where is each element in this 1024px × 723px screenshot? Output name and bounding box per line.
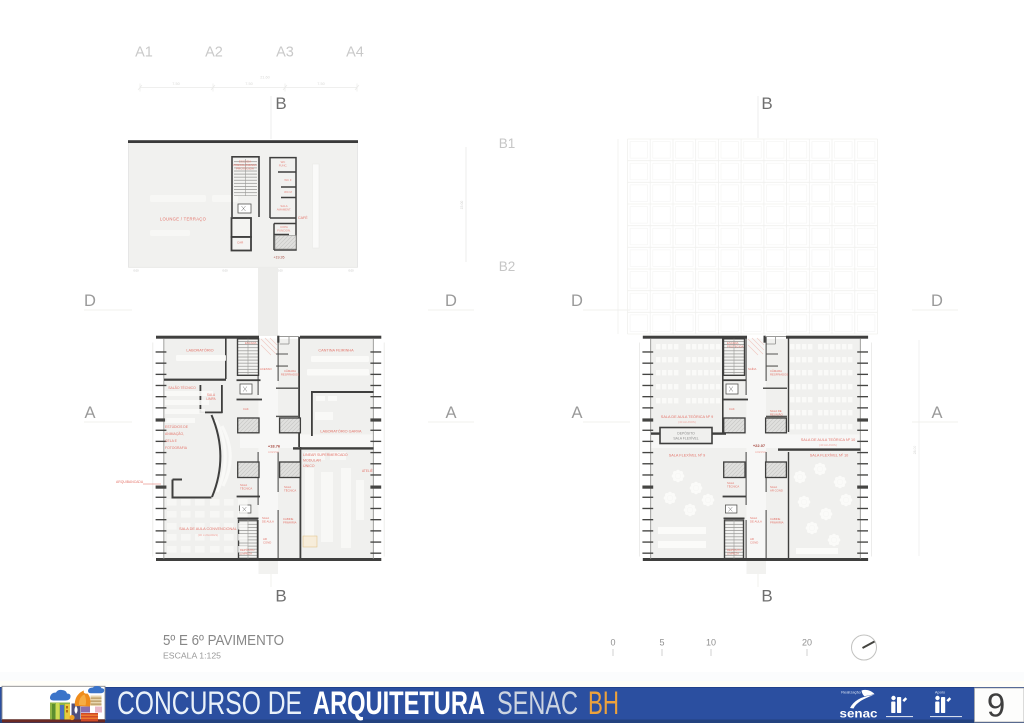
svg-text:D: D: [445, 292, 457, 310]
svg-text:7.50: 7.50: [317, 82, 324, 86]
svg-text:LABORATÓRIO GARVA: LABORATÓRIO GARVA: [320, 429, 362, 434]
svg-text:7.50: 7.50: [245, 82, 252, 86]
svg-text:Apoio: Apoio: [935, 690, 946, 695]
svg-text:0.00: 0.00: [133, 269, 139, 273]
svg-text:20: 20: [802, 638, 812, 648]
svg-text:LOUNGE / TERRAÇO: LOUNGE / TERRAÇO: [160, 217, 207, 222]
svg-text:0: 0: [610, 638, 615, 648]
svg-text:TÉCNICA: TÉCNICA: [727, 484, 739, 489]
svg-text:ACESSO: ACESSO: [268, 450, 279, 454]
svg-text:A3: A3: [276, 45, 294, 61]
svg-text:COND: COND: [750, 541, 758, 545]
svg-text:LIMPEZA: LIMPEZA: [727, 552, 739, 556]
svg-text:TÉCNICA: TÉCNICA: [284, 488, 296, 493]
svg-text:B: B: [275, 94, 286, 113]
svg-text:SALA DE AULA CONVENCIONAL: SALA DE AULA CONVENCIONAL: [179, 527, 237, 531]
svg-text:D: D: [931, 292, 943, 310]
svg-text:DE AULA: DE AULA: [262, 520, 274, 524]
svg-text:A: A: [571, 404, 582, 422]
svg-text:SALA FLEXÍVEL Nº 10: SALA FLEXÍVEL Nº 10: [810, 454, 849, 458]
svg-text:ESCALA 1:125: ESCALA 1:125: [163, 652, 222, 661]
svg-text:WC M: WC M: [284, 190, 292, 194]
svg-text:RESFRIADOS: RESFRIADOS: [281, 373, 299, 377]
svg-text:SENAC: SENAC: [497, 685, 578, 721]
svg-text:10: 10: [706, 638, 716, 648]
svg-text:28.00: 28.00: [913, 446, 917, 455]
svg-text:PRIMÁRIA: PRIMÁRIA: [770, 521, 784, 525]
svg-text:ANIMAÇÃO,: ANIMAÇÃO,: [165, 431, 184, 436]
svg-text:REUNIÃO: REUNIÃO: [770, 412, 784, 417]
svg-text:B1: B1: [499, 136, 516, 151]
svg-text:SALA FLEXÍVEL: SALA FLEXÍVEL: [673, 437, 698, 441]
svg-text:9: 9: [987, 687, 1005, 723]
svg-text:PRIMÁRIA: PRIMÁRIA: [283, 521, 297, 525]
svg-text:B: B: [761, 587, 772, 606]
svg-text:(40 ALUNOS): (40 ALUNOS): [678, 420, 696, 424]
svg-text:ATELIÊ: ATELIÊ: [362, 468, 373, 473]
svg-text:FOTOGRAFIA: FOTOGRAFIA: [165, 446, 188, 450]
svg-text:Realização: Realização: [841, 690, 862, 695]
svg-text:B2: B2: [499, 259, 516, 274]
svg-text:15.00: 15.00: [460, 201, 464, 210]
svg-text:AMAMENT.: AMAMENT.: [277, 208, 292, 212]
svg-text:PROTEGIDA: PROTEGIDA: [236, 167, 254, 171]
svg-text:(40 ALUNOS): (40 ALUNOS): [819, 443, 837, 447]
svg-text:5º E 6º PAVIMENTO: 5º E 6º PAVIMENTO: [163, 633, 284, 649]
svg-text:RESFRIADOS: RESFRIADOS: [770, 373, 788, 377]
svg-text:7.50: 7.50: [172, 82, 179, 86]
svg-text:CAR: CAR: [237, 241, 244, 245]
svg-text:BH: BH: [588, 685, 619, 721]
svg-text:CAF.: CAF.: [729, 407, 735, 411]
svg-text:SAÍDA: SAÍDA: [748, 367, 757, 371]
svg-text:CELA E: CELA E: [165, 439, 178, 443]
svg-text:0.00: 0.00: [277, 269, 283, 273]
svg-text:PROTEGIDA: PROTEGIDA: [727, 345, 744, 349]
svg-text:A4: A4: [346, 45, 364, 61]
svg-text:TÉCNICA: TÉCNICA: [240, 486, 252, 491]
svg-text:ESTÚDIOS DE: ESTÚDIOS DE: [165, 424, 189, 429]
svg-text:AR COND: AR COND: [770, 489, 783, 493]
svg-text:A2: A2: [205, 45, 223, 61]
svg-text:+19.26: +19.26: [273, 256, 284, 260]
svg-text:LIMPA: LIMPA: [206, 397, 216, 401]
svg-text:A: A: [84, 404, 95, 422]
svg-text:DE AULA: DE AULA: [750, 520, 762, 524]
svg-text:SALA DE AULA TEÓRICA Nº 9: SALA DE AULA TEÓRICA Nº 9: [661, 414, 713, 419]
svg-text:CANTINA FEIRINHA: CANTINA FEIRINHA: [318, 349, 354, 353]
svg-text:MODULAR: MODULAR: [303, 459, 321, 463]
svg-text:DEPÓSITO: DEPÓSITO: [677, 431, 695, 436]
svg-text:A: A: [445, 404, 456, 422]
svg-text:A: A: [931, 404, 942, 422]
svg-text:ARQUITETURA: ARQUITETURA: [313, 685, 485, 721]
svg-text:SALÃO TÉCNICO: SALÃO TÉCNICO: [168, 385, 196, 390]
svg-text:5: 5: [659, 638, 664, 648]
svg-text:21.60: 21.60: [260, 76, 270, 80]
svg-text:0.00: 0.00: [222, 269, 228, 273]
svg-text:ACESSO: ACESSO: [260, 367, 272, 371]
svg-text:(30 LUGARES): (30 LUGARES): [198, 533, 219, 537]
svg-text:CAF.: CAF.: [243, 407, 249, 411]
svg-text:ACESSO: ACESSO: [755, 450, 766, 454]
svg-text:ARQUIBANCADA: ARQUIBANCADA: [116, 480, 144, 484]
svg-text:B: B: [275, 587, 286, 606]
svg-text:SALA DE AULA TEÓRICA Nº 10: SALA DE AULA TEÓRICA Nº 10: [801, 437, 856, 442]
svg-text:D: D: [84, 292, 96, 310]
svg-text:CONCURSO DE: CONCURSO DE: [117, 685, 302, 721]
svg-text:FUNCION.: FUNCION.: [277, 229, 291, 233]
svg-text:+18.76: +18.76: [268, 444, 281, 449]
svg-text:FUNC.: FUNC.: [279, 164, 288, 168]
svg-text:WC F: WC F: [284, 178, 291, 182]
svg-text:D: D: [571, 292, 583, 310]
svg-text:LABORATÓRIO: LABORATÓRIO: [186, 348, 213, 353]
svg-text:SALA FLEXÍVEL Nº 9: SALA FLEXÍVEL Nº 9: [669, 454, 706, 458]
svg-text:ÚNICO: ÚNICO: [303, 463, 315, 468]
svg-text:+22.07: +22.07: [753, 443, 766, 448]
svg-text:LINEAR SUPERMERCADO: LINEAR SUPERMERCADO: [303, 453, 348, 457]
svg-text:senac: senac: [840, 709, 879, 721]
svg-text:0.00: 0.00: [348, 269, 354, 273]
svg-text:ESCADA: ESCADA: [245, 341, 257, 345]
svg-text:COND: COND: [263, 541, 271, 545]
svg-text:LIMPEZA: LIMPEZA: [240, 552, 252, 556]
svg-text:A1: A1: [135, 45, 153, 61]
svg-text:B: B: [761, 94, 772, 113]
svg-text:CAFÉ: CAFÉ: [298, 215, 308, 220]
